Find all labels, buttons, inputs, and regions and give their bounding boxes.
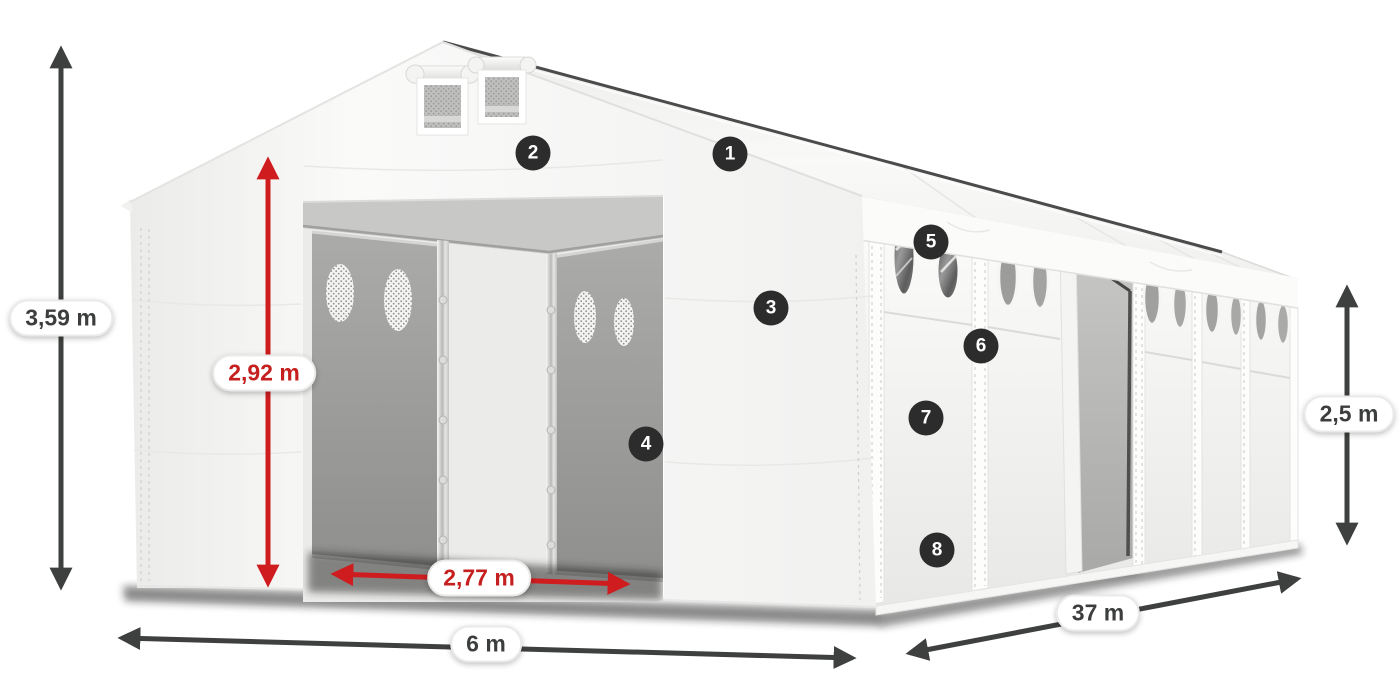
callout-badge-8: 8 (920, 533, 955, 568)
callout-badge-2: 2 (516, 136, 551, 171)
callout-badge-7: 7 (909, 401, 944, 436)
callout-badge-5: 5 (914, 225, 949, 260)
side-door-opening (1060, 249, 1133, 574)
tent-illustration (0, 0, 1400, 700)
gable-vent-left (406, 65, 479, 135)
callout-badge-1: 1 (713, 137, 748, 172)
dimension-label-total-height: 3,59 m (9, 300, 113, 337)
product-diagram-tent: 1 2 3 4 5 6 7 8 3,59 m 2,92 m 2,77 m 6 m… (0, 0, 1400, 700)
dimension-label-length: 37 m (1056, 595, 1140, 632)
callout-badge-3: 3 (754, 291, 789, 326)
entry-interior (300, 190, 670, 605)
dimension-label-side-height: 2,5 m (1304, 396, 1395, 433)
callout-badge-4: 4 (629, 427, 664, 462)
gable-vent-right (468, 57, 536, 124)
dimension-label-entry-width: 2,77 m (427, 560, 531, 597)
dimension-label-width: 6 m (450, 626, 522, 663)
callout-badge-6: 6 (964, 329, 999, 364)
dimension-label-entry-height: 2,92 m (212, 355, 316, 392)
